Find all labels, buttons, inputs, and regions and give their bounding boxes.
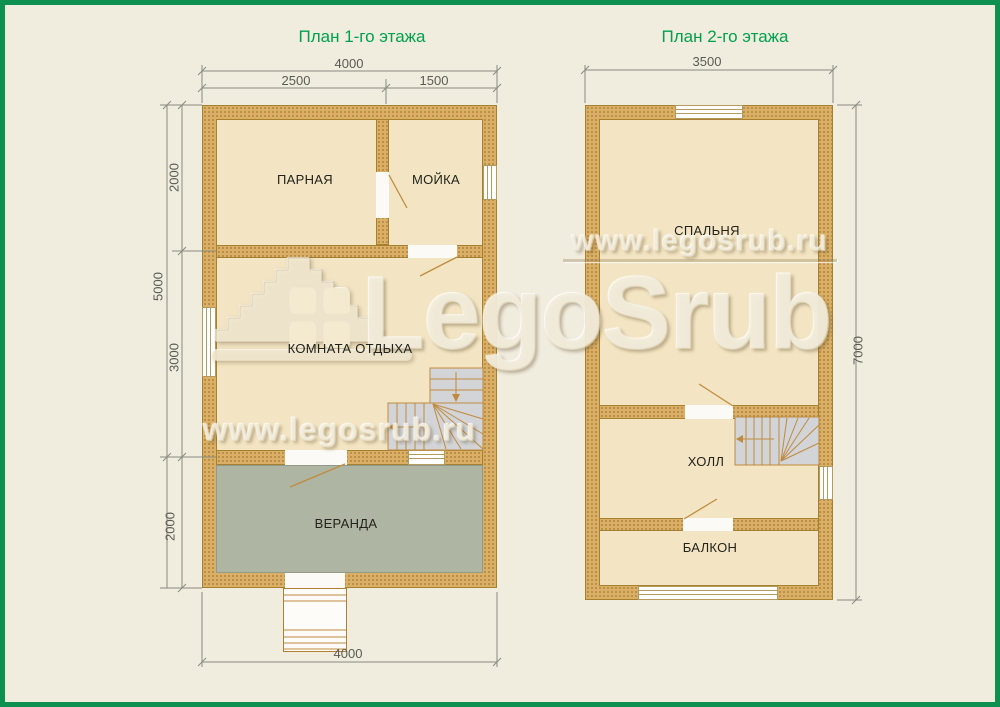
- dim-label-3500: 3500: [677, 54, 737, 69]
- dim-label-1500: 1500: [404, 73, 464, 88]
- dim-label-3000: 3000: [167, 333, 182, 383]
- dim-label-4000-top: 4000: [319, 56, 379, 71]
- plan2-title: План 2-го этажа: [625, 27, 825, 47]
- floor-plan-canvas: LegoSrub www.legosrub.ru www.legosrub.ru…: [0, 0, 1000, 707]
- dim-label-5000: 5000: [151, 262, 166, 312]
- dim-label-4000-bottom: 4000: [318, 646, 378, 661]
- dim-label-2000-top: 2000: [167, 153, 182, 203]
- dim-label-2500: 2500: [266, 73, 326, 88]
- dim-plan2-top: [581, 65, 837, 103]
- plan1-title: План 1-го этажа: [262, 27, 462, 47]
- dim-label-2000-bottom: 2000: [163, 502, 178, 552]
- dim-label-7000: 7000: [851, 326, 866, 376]
